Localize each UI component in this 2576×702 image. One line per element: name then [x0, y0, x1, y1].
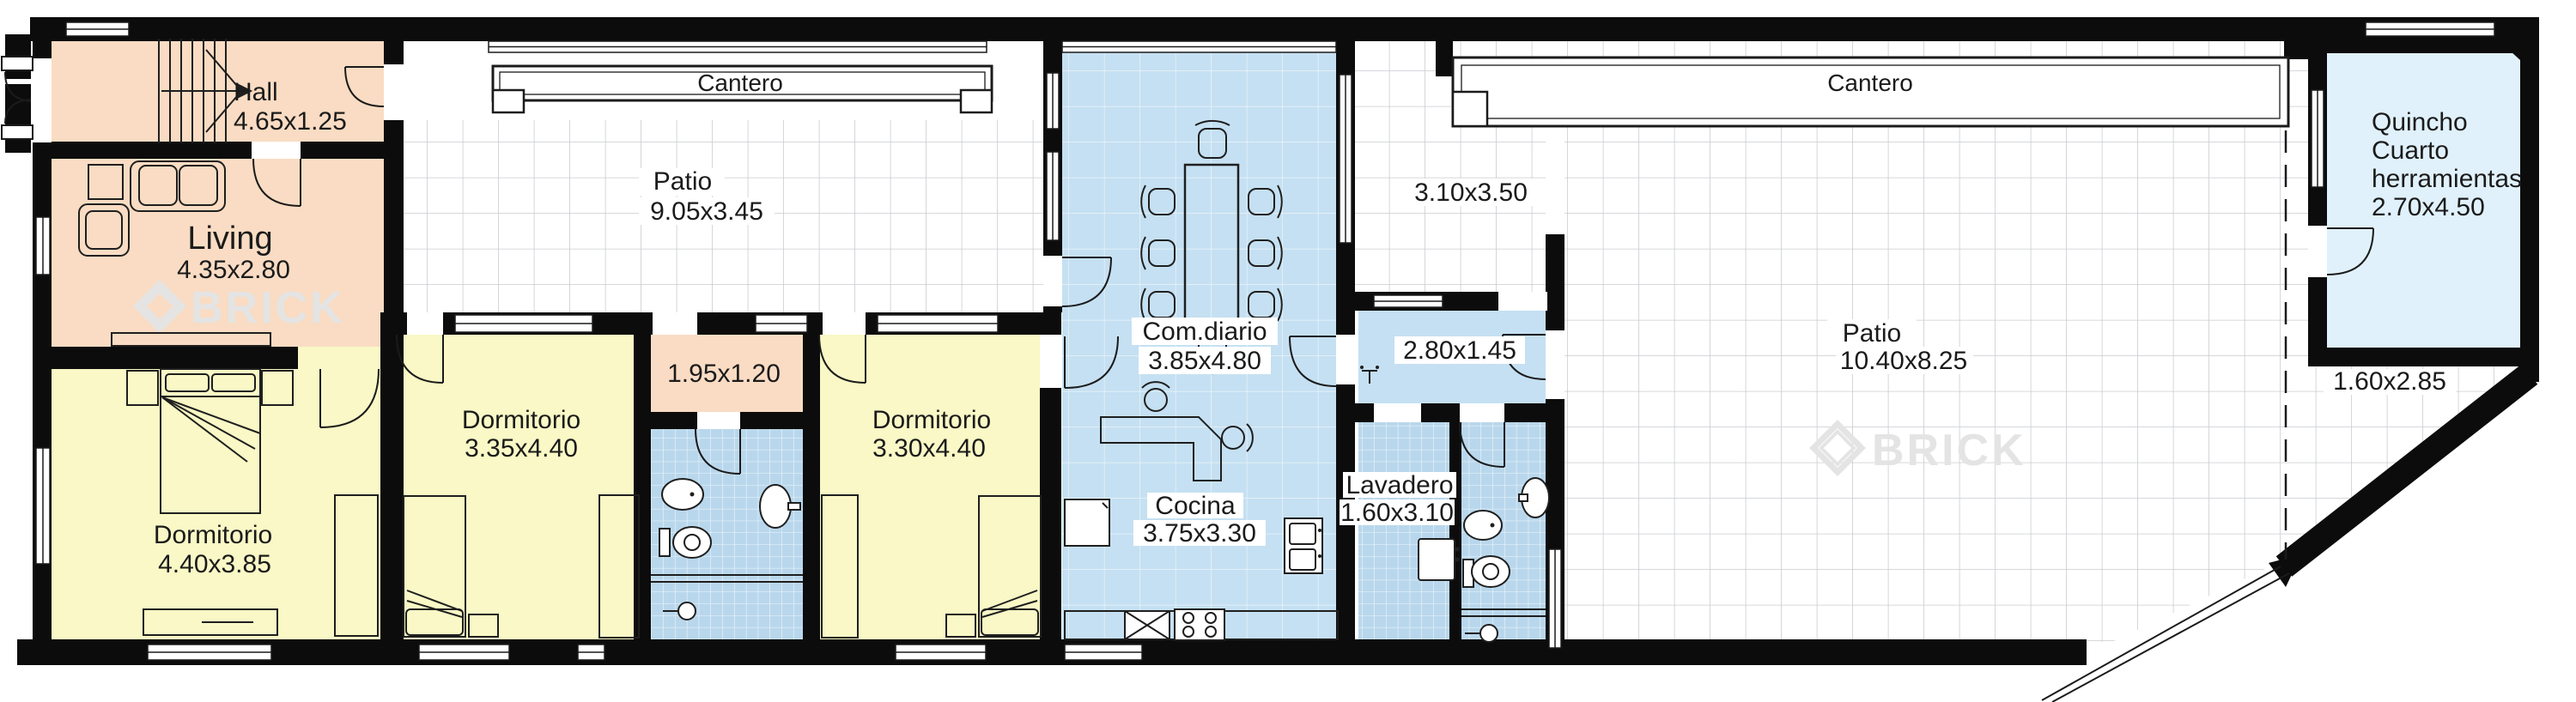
wall-bath1-dorm3: [803, 312, 820, 639]
sill-patio-top: [489, 41, 987, 52]
window-quincho-top: [2366, 22, 2494, 36]
watermark-text-living: BRICK: [191, 283, 345, 333]
dorm2-label: Dormitorio: [462, 406, 580, 434]
toilet: [1472, 556, 1510, 587]
lavadero-label: Lavadero: [1346, 471, 1453, 499]
wall-quincho-bottom: [2308, 348, 2539, 366]
shower-head: [678, 602, 696, 620]
window-comdiario-patio-b: [1047, 152, 1059, 240]
lavadero-dims: 1.60x3.10: [1340, 499, 1454, 527]
quincho-dims: 2.70x4.50: [2372, 193, 2485, 221]
window-bath2-patio: [1549, 549, 1561, 648]
living-label: Living: [187, 221, 272, 257]
quincho-label-1: Quincho: [2372, 108, 2468, 136]
toilet-tank: [659, 529, 670, 556]
window-dorm1-bottom: [148, 645, 271, 660]
window-hall-top: [66, 22, 129, 36]
dorm3-dims: 3.30x4.40: [872, 434, 986, 463]
wall-lavadero-bath2: [1449, 422, 1461, 639]
window-comdiario-patio-a: [1047, 73, 1059, 129]
window-dorm3-patio: [878, 315, 998, 332]
bidet: [1464, 511, 1502, 540]
toilet: [673, 527, 711, 558]
comdiario-label: Com.diario: [1142, 318, 1267, 346]
watermark-text-patio: BRICK: [1872, 426, 2026, 475]
living-dims: 4.35x2.80: [177, 256, 290, 284]
opening-passage-patio-a: [653, 312, 697, 335]
window-dorm1-left: [36, 448, 50, 564]
window-bath1-bottom: [578, 645, 605, 660]
window-dorm2-bottom: [419, 645, 509, 660]
stove: [1175, 609, 1224, 640]
dorm1-label: Dormitorio: [154, 521, 272, 549]
window-dorm3-bottom: [896, 645, 986, 660]
lavadero-tiles: [1358, 422, 1449, 639]
sink: [760, 485, 791, 528]
window-passage-top: [1374, 295, 1443, 307]
wall-top: [30, 17, 2539, 41]
side-strip-dims: 1.60x2.85: [2333, 367, 2446, 396]
wall-left-stub-b: [5, 84, 31, 153]
dorm3-label: Dormitorio: [872, 406, 991, 434]
patio-right-label: Patio: [1843, 319, 1901, 348]
wall-dorm2-bath1: [634, 335, 651, 639]
bath1-tiles: [651, 429, 803, 639]
entry-door-leaf-top: [2, 57, 33, 70]
wall-living-bottom: [33, 347, 298, 369]
comdiario-dims: 3.85x4.80: [1148, 347, 1261, 375]
window-quincho-left: [2312, 90, 2324, 187]
courtyard-dims: 3.10x3.50: [1414, 179, 1528, 207]
window-living-left: [36, 217, 50, 275]
cocina-dims: 3.75x3.30: [1143, 519, 1256, 548]
patio-right-dims: 10.40x8.25: [1840, 347, 1967, 375]
wall-quincho-right: [2520, 17, 2539, 382]
wall-hall-living-a: [52, 142, 252, 159]
pass-beds-dims: 1.95x1.20: [667, 360, 781, 388]
dorm2-dims: 3.35x4.40: [465, 434, 578, 463]
cocina-label: Cocina: [1155, 492, 1236, 520]
entry-door-leaf-bottom: [2, 125, 33, 139]
window-comdiario-courtyard: [1340, 75, 1352, 243]
window-passage-patio: [756, 315, 807, 332]
quincho-label-3: herramientas: [2372, 165, 2522, 193]
bidet: [662, 479, 703, 510]
wall-dorm1-dorm2: [380, 312, 404, 639]
fridge: [1065, 499, 1109, 546]
quincho-label-2: Cuarto: [2372, 136, 2449, 165]
cantero-left-label: Cantero: [697, 70, 783, 96]
hall-label: Hall: [234, 78, 278, 106]
shower-head: [1480, 625, 1498, 642]
patio-left-dims: 9.05x3.45: [650, 197, 763, 226]
wall-bottom: [17, 639, 2087, 665]
dorm3-floor: [820, 335, 1040, 639]
window-cocina-bottom: [1065, 645, 1142, 660]
cantero-right-label: Cantero: [1827, 70, 1913, 96]
sill-comdiario-top: [1062, 41, 1336, 52]
window-dorm2-patio: [455, 315, 592, 332]
pass-patio-dims: 2.80x1.45: [1403, 336, 1516, 365]
hall-dims: 4.65x1.25: [234, 107, 347, 136]
wall-hall-living-b: [301, 142, 384, 159]
floor-plan: BRICK BRICK: [0, 0, 2576, 702]
washer: [1419, 539, 1455, 580]
dorm1-dims: 4.40x3.85: [158, 550, 271, 578]
wall-cantero-pier-left: [1436, 37, 1453, 76]
patio-left-label: Patio: [653, 167, 712, 196]
